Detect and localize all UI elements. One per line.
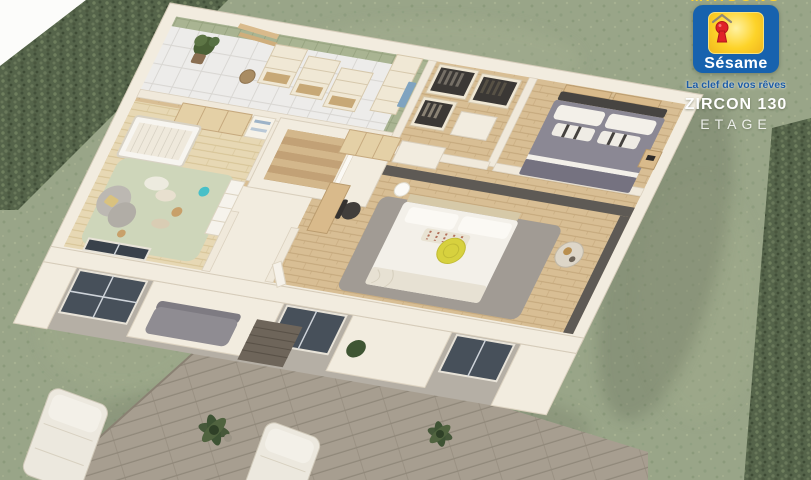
brand-block: MAISONS Sésame La clef de vos rêves ZIRC… <box>650 0 811 132</box>
brand-top-clipped: MAISONS <box>650 0 811 5</box>
floor-level-label: ETAGE <box>650 116 811 132</box>
logo-card: Sésame <box>693 5 779 73</box>
logo-tile <box>708 12 764 54</box>
model-name: ZIRCON 130 <box>650 96 811 114</box>
brand-top-text: MAISONS <box>690 0 781 5</box>
floor-plan-render: MAISONS Sésame La clef de vos rêves ZIRC… <box>0 0 811 480</box>
brand-name: Sésame <box>693 55 779 73</box>
brand-tagline: La clef de vos rêves <box>650 79 811 91</box>
keyhole-house-icon <box>709 13 735 45</box>
